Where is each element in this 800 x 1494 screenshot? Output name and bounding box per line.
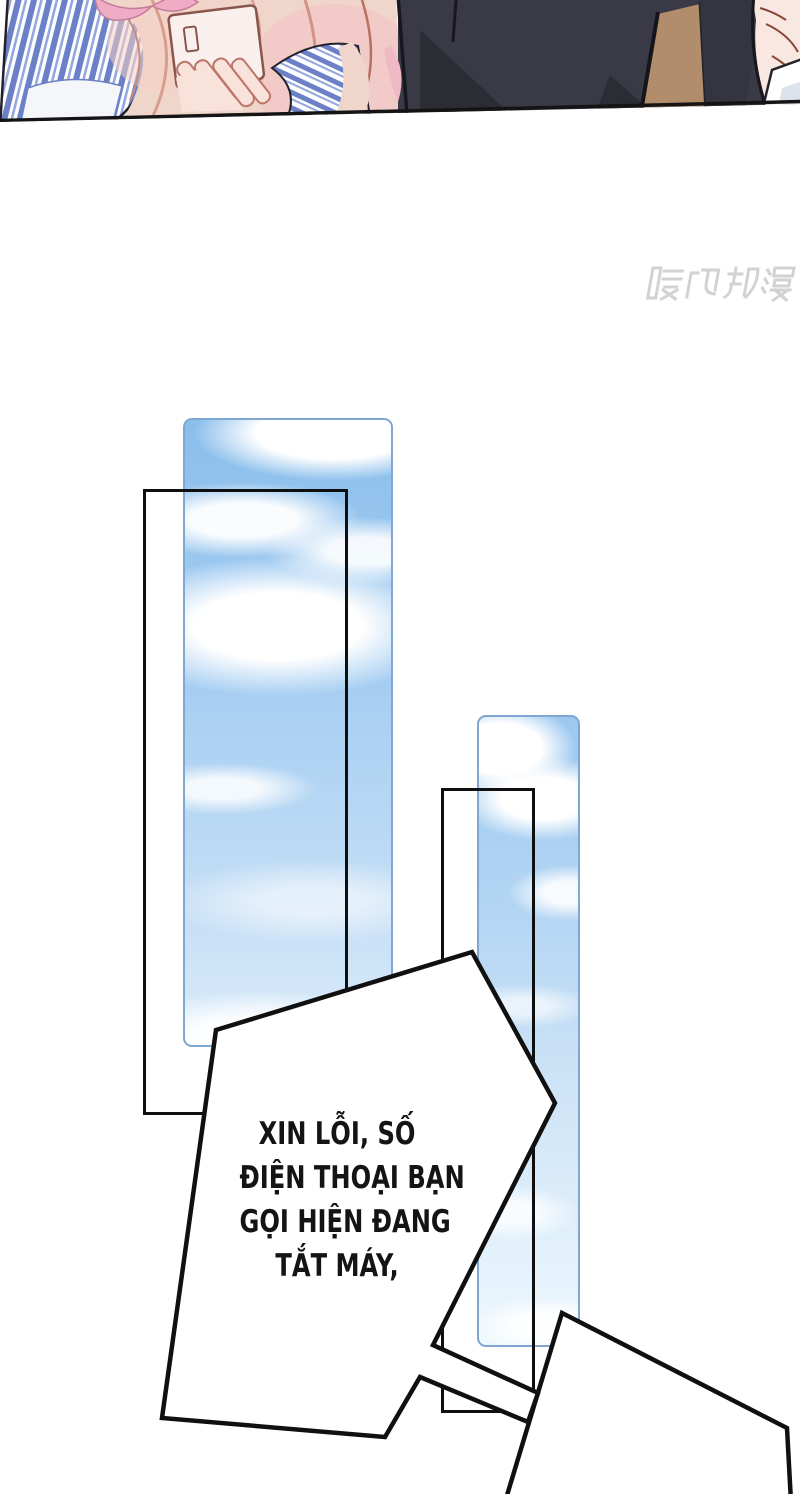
- bubble-line: TẮT MÁY,: [240, 1244, 435, 1288]
- bubble-line: GỌI HIỆN ĐANG: [240, 1200, 435, 1244]
- frame-rect-left: [143, 489, 348, 1115]
- tencent-comics-watermark: [644, 260, 800, 310]
- top-illustration: [0, 0, 800, 125]
- frame-rect-right: [441, 788, 535, 1413]
- speech-bubble-text: XIN LỖI, SỐ ĐIỆN THOẠI BẠN GỌI HIỆN ĐANG…: [240, 1112, 435, 1288]
- comic-page: XIN LỖI, SỐ ĐIỆN THOẠI BẠN GỌI HIỆN ĐANG…: [0, 0, 800, 1494]
- bubble-line: XIN LỖI, SỐ: [240, 1112, 435, 1156]
- watermark-glyphs: [647, 268, 794, 300]
- bubble-line: ĐIỆN THOẠI BẠN: [240, 1156, 435, 1200]
